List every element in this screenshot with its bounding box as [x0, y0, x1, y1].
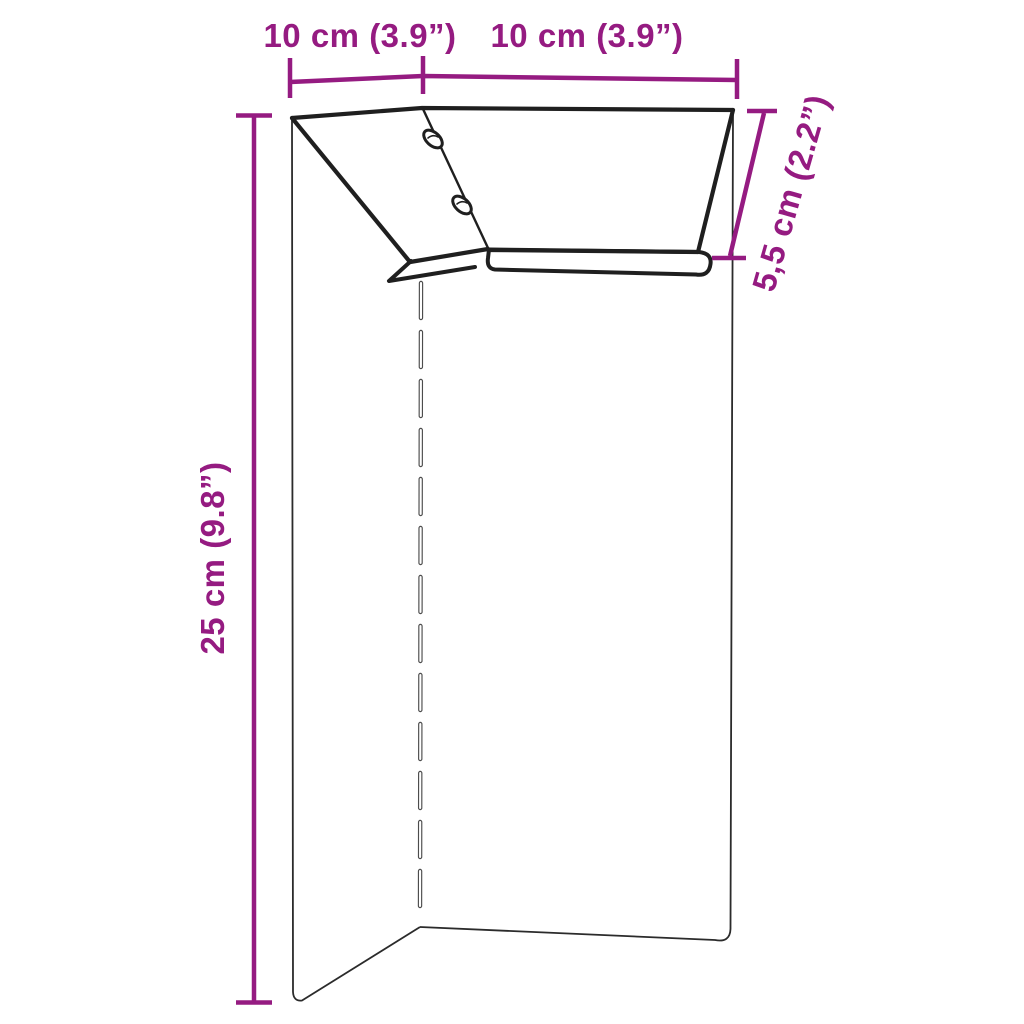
dimension-label-depth: 5,5 cm (2.2”) [745, 90, 836, 295]
top-dimension-line [290, 76, 737, 82]
dimension-label-depth-group: 5,5 cm (2.2”) [745, 90, 836, 295]
top-width-dimension [290, 56, 737, 99]
height-dimension [236, 116, 272, 1003]
dimension-label-top-right-width: 10 cm (3.9”) [490, 17, 683, 54]
dimension-label-top-left-width: 10 cm (3.9”) [263, 17, 456, 54]
dimension-label-height-group: 25 cm (9.8”) [194, 461, 231, 654]
top-plate-right-crease [490, 250, 698, 252]
dimension-diagram: 10 cm (3.9”) 10 cm (3.9”) 25 cm (9.8”) 5… [0, 0, 1024, 1024]
diagram-canvas: 10 cm (3.9”) 10 cm (3.9”) 25 cm (9.8”) 5… [0, 0, 1024, 1024]
dimension-label-height: 25 cm (9.8”) [194, 461, 231, 654]
top-plate-left-lip [389, 261, 475, 281]
